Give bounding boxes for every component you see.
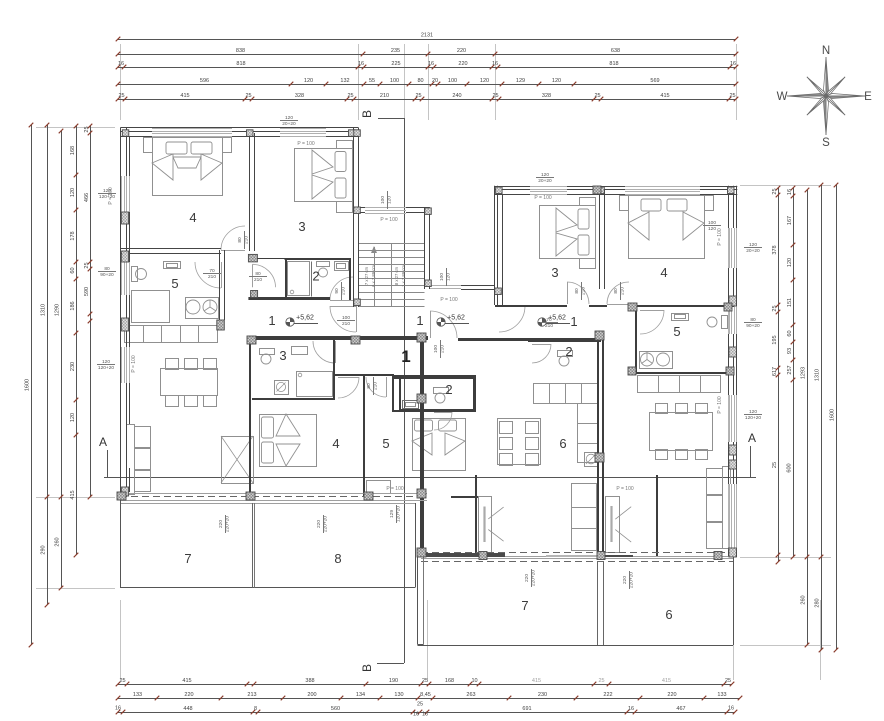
svg-text:120: 120 xyxy=(285,115,293,121)
svg-text:220: 220 xyxy=(316,520,322,528)
svg-text:225: 225 xyxy=(391,61,400,67)
svg-text:80: 80 xyxy=(366,383,372,389)
svg-text:16: 16 xyxy=(413,712,419,718)
svg-text:120+20: 120+20 xyxy=(98,365,114,371)
svg-text:W: W xyxy=(777,91,788,103)
svg-text:90+20: 90+20 xyxy=(746,323,760,329)
svg-text:P = 100: P = 100 xyxy=(297,141,315,147)
svg-text:P = 100: P = 100 xyxy=(440,297,458,303)
svg-text:80: 80 xyxy=(750,317,756,323)
svg-text:560: 560 xyxy=(331,706,340,712)
svg-text:P = 100: P = 100 xyxy=(131,355,137,373)
svg-text:120: 120 xyxy=(552,78,561,84)
svg-text:P = 100: P = 100 xyxy=(534,195,552,201)
svg-text:210: 210 xyxy=(208,274,216,280)
svg-text:132: 132 xyxy=(340,78,349,84)
svg-text:1 x 7,89 cm: 1 x 7,89 cm xyxy=(401,265,406,287)
svg-text:1: 1 xyxy=(570,314,577,329)
svg-text:25: 25 xyxy=(772,462,778,468)
svg-text:120: 120 xyxy=(708,226,716,232)
svg-text:2: 2 xyxy=(445,382,452,397)
svg-text:5: 5 xyxy=(673,324,680,339)
svg-text:16: 16 xyxy=(115,706,121,712)
svg-text:5: 5 xyxy=(382,436,389,451)
svg-text:4: 4 xyxy=(332,436,339,451)
svg-text:178: 178 xyxy=(70,231,76,240)
svg-text:290: 290 xyxy=(41,545,47,554)
svg-text:25: 25 xyxy=(84,262,90,268)
svg-text:134: 134 xyxy=(356,692,365,698)
svg-text:7: 7 xyxy=(521,598,528,613)
svg-text:167: 167 xyxy=(787,216,793,225)
svg-text:20+20: 20+20 xyxy=(746,248,760,254)
svg-text:6 x 7,89 cm: 6 x 7,89 cm xyxy=(371,265,376,287)
svg-text:1293: 1293 xyxy=(801,367,807,379)
svg-text:129: 129 xyxy=(389,510,395,518)
svg-text:691: 691 xyxy=(522,706,531,712)
svg-text:A: A xyxy=(748,431,756,445)
svg-text:120: 120 xyxy=(749,242,757,248)
svg-text:415: 415 xyxy=(180,93,189,99)
svg-text:100: 100 xyxy=(439,273,445,281)
svg-text:P = 100: P = 100 xyxy=(380,217,398,223)
svg-text:80: 80 xyxy=(104,266,110,272)
svg-text:195: 195 xyxy=(772,335,778,344)
svg-text:25: 25 xyxy=(119,678,125,684)
svg-text:260: 260 xyxy=(801,595,807,604)
svg-text:120: 120 xyxy=(70,413,76,422)
svg-text:120: 120 xyxy=(749,409,757,415)
svg-text:3: 3 xyxy=(298,219,305,234)
svg-text:1600: 1600 xyxy=(25,379,31,391)
svg-text:70: 70 xyxy=(209,268,215,274)
svg-text:120+20: 120+20 xyxy=(745,415,761,421)
svg-text:448: 448 xyxy=(183,706,192,712)
svg-text:25: 25 xyxy=(415,93,421,99)
svg-text:168: 168 xyxy=(445,678,454,684)
svg-text:100: 100 xyxy=(380,196,386,204)
svg-text:10: 10 xyxy=(471,678,477,684)
svg-text:4: 4 xyxy=(660,265,667,280)
svg-text:8,45: 8,45 xyxy=(420,692,431,698)
svg-text:16: 16 xyxy=(628,706,634,712)
svg-text:210: 210 xyxy=(380,93,389,99)
svg-text:600: 600 xyxy=(787,463,793,472)
svg-text:2131: 2131 xyxy=(421,33,433,39)
svg-text:16: 16 xyxy=(787,189,793,195)
svg-text:263: 263 xyxy=(466,692,475,698)
svg-text:P = 100: P = 100 xyxy=(616,486,634,492)
svg-text:230: 230 xyxy=(70,362,76,371)
svg-text:120: 120 xyxy=(102,359,110,365)
svg-text:S: S xyxy=(822,137,830,149)
svg-text:120: 120 xyxy=(70,188,76,197)
svg-text:257: 257 xyxy=(787,365,793,374)
svg-text:220: 220 xyxy=(622,576,628,584)
svg-text:190: 190 xyxy=(389,678,398,684)
svg-text:E: E xyxy=(864,91,872,103)
svg-text:25: 25 xyxy=(729,93,735,99)
svg-text:3: 3 xyxy=(279,348,286,363)
svg-text:2: 2 xyxy=(312,269,319,284)
svg-text:210: 210 xyxy=(342,321,350,327)
svg-text:220: 220 xyxy=(524,574,530,582)
svg-text:569: 569 xyxy=(650,78,659,84)
svg-text:415: 415 xyxy=(182,678,191,684)
svg-text:100: 100 xyxy=(390,78,399,84)
svg-text:70: 70 xyxy=(546,317,552,323)
svg-text:6: 6 xyxy=(559,436,566,451)
svg-text:16: 16 xyxy=(118,61,124,67)
svg-text:1310: 1310 xyxy=(41,304,47,316)
svg-text:260: 260 xyxy=(55,537,61,546)
svg-text:415: 415 xyxy=(662,678,671,684)
svg-text:130: 130 xyxy=(394,692,403,698)
svg-text:55: 55 xyxy=(369,78,375,84)
svg-text:1: 1 xyxy=(401,347,410,366)
svg-text:280: 280 xyxy=(815,598,821,607)
svg-text:16: 16 xyxy=(492,61,498,67)
svg-text:466: 466 xyxy=(84,193,90,202)
svg-text:20: 20 xyxy=(432,78,438,84)
svg-text:16: 16 xyxy=(422,712,428,718)
svg-text:638: 638 xyxy=(611,48,620,54)
svg-text:415: 415 xyxy=(70,490,76,499)
svg-text:617: 617 xyxy=(772,367,778,376)
svg-text:25: 25 xyxy=(492,93,498,99)
svg-text:1290: 1290 xyxy=(55,304,61,316)
svg-text:A: A xyxy=(99,435,107,449)
svg-text:210: 210 xyxy=(254,277,262,283)
svg-text:4: 4 xyxy=(189,210,196,225)
svg-text:240: 240 xyxy=(452,93,461,99)
svg-text:25: 25 xyxy=(422,678,428,684)
svg-text:20+20: 20+20 xyxy=(282,121,296,127)
svg-text:415: 415 xyxy=(660,93,669,99)
svg-text:133: 133 xyxy=(133,692,142,698)
svg-text:5: 5 xyxy=(171,276,178,291)
svg-text:25: 25 xyxy=(598,678,604,684)
svg-text:+5,62: +5,62 xyxy=(296,315,314,322)
svg-text:590: 590 xyxy=(84,287,90,296)
svg-text:467: 467 xyxy=(676,706,685,712)
svg-text:80: 80 xyxy=(255,271,261,277)
svg-text:213: 213 xyxy=(247,692,256,698)
svg-text:100: 100 xyxy=(448,78,457,84)
svg-text:200: 200 xyxy=(307,692,316,698)
svg-text:25: 25 xyxy=(118,93,124,99)
svg-text:B: B xyxy=(360,664,374,672)
svg-text:60: 60 xyxy=(70,267,76,273)
svg-text:129: 129 xyxy=(516,78,525,84)
svg-text:120: 120 xyxy=(304,78,313,84)
svg-text:415: 415 xyxy=(532,678,541,684)
svg-text:378: 378 xyxy=(772,245,778,254)
svg-text:P = 100: P = 100 xyxy=(386,486,404,492)
svg-text:220: 220 xyxy=(184,692,193,698)
svg-text:151: 151 xyxy=(787,298,793,307)
svg-text:80: 80 xyxy=(237,237,243,243)
svg-text:16: 16 xyxy=(358,61,364,67)
svg-text:20+20: 20+20 xyxy=(538,178,552,184)
svg-text:120: 120 xyxy=(480,78,489,84)
svg-text:25: 25 xyxy=(245,93,251,99)
svg-text:100: 100 xyxy=(708,220,716,226)
svg-text:120: 120 xyxy=(103,188,111,194)
svg-text:120: 120 xyxy=(541,172,549,178)
svg-text:186: 186 xyxy=(70,301,76,310)
svg-text:168: 168 xyxy=(70,146,76,155)
svg-text:388: 388 xyxy=(305,678,314,684)
svg-text:1: 1 xyxy=(268,313,275,328)
svg-text:80: 80 xyxy=(417,78,423,84)
svg-text:3: 3 xyxy=(551,265,558,280)
svg-text:220: 220 xyxy=(218,520,224,528)
svg-text:220: 220 xyxy=(457,48,466,54)
svg-text:235: 235 xyxy=(391,48,400,54)
svg-text:8: 8 xyxy=(254,706,257,712)
svg-text:93: 93 xyxy=(787,348,793,354)
svg-text:25: 25 xyxy=(772,188,778,194)
svg-text:1310: 1310 xyxy=(815,369,821,381)
svg-text:90+20: 90+20 xyxy=(100,272,114,278)
svg-text:100: 100 xyxy=(342,315,350,321)
svg-text:220: 220 xyxy=(458,61,467,67)
svg-text:7 x 27 cm: 7 x 27 cm xyxy=(364,266,369,285)
svg-text:838: 838 xyxy=(236,48,245,54)
svg-text:16: 16 xyxy=(428,61,434,67)
svg-text:100: 100 xyxy=(433,345,439,353)
svg-text:80: 80 xyxy=(574,288,580,294)
svg-text:80: 80 xyxy=(613,288,619,294)
svg-text:P = 100: P = 100 xyxy=(717,396,723,414)
svg-text:90: 90 xyxy=(334,288,340,294)
svg-text:120+20: 120+20 xyxy=(99,194,115,200)
svg-text:16: 16 xyxy=(728,706,734,712)
svg-text:222: 222 xyxy=(603,692,612,698)
svg-text:P = 100: P = 100 xyxy=(717,228,723,246)
svg-text:818: 818 xyxy=(236,61,245,67)
svg-text:220: 220 xyxy=(667,692,676,698)
svg-text:25: 25 xyxy=(347,93,353,99)
svg-text:16: 16 xyxy=(730,61,736,67)
svg-text:6: 6 xyxy=(665,607,672,622)
svg-text:596: 596 xyxy=(200,78,209,84)
svg-text:25: 25 xyxy=(772,305,778,311)
svg-text:8: 8 xyxy=(334,551,341,566)
svg-text:818: 818 xyxy=(609,61,618,67)
svg-text:25: 25 xyxy=(594,93,600,99)
svg-text:B: B xyxy=(360,110,374,118)
svg-text:1600: 1600 xyxy=(830,409,836,421)
svg-text:230: 230 xyxy=(538,692,547,698)
svg-text:25: 25 xyxy=(84,126,90,132)
svg-text:210: 210 xyxy=(545,323,553,329)
svg-text:328: 328 xyxy=(542,93,551,99)
svg-text:60: 60 xyxy=(787,330,793,336)
svg-text:+5,62: +5,62 xyxy=(447,315,465,322)
svg-text:N: N xyxy=(822,45,830,57)
svg-text:25: 25 xyxy=(417,702,423,708)
svg-text:328: 328 xyxy=(295,93,304,99)
svg-text:1: 1 xyxy=(416,313,423,328)
svg-text:133: 133 xyxy=(717,692,726,698)
svg-text:25: 25 xyxy=(725,678,731,684)
svg-text:8 x 27 cm: 8 x 27 cm xyxy=(394,266,399,285)
svg-text:2: 2 xyxy=(565,344,572,359)
svg-text:120: 120 xyxy=(787,258,793,267)
svg-text:7: 7 xyxy=(184,551,191,566)
